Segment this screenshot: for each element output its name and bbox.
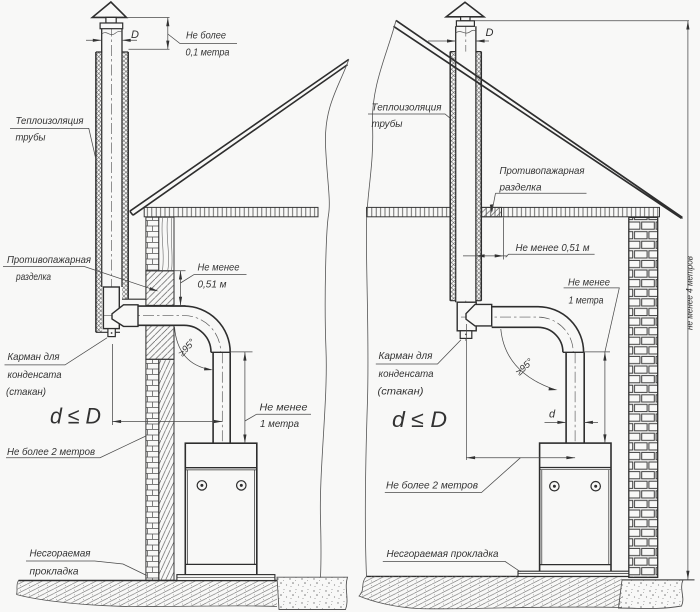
- svg-text:разделка: разделка: [499, 181, 542, 193]
- svg-text:Карман для: Карман для: [8, 351, 60, 363]
- svg-text:прокладка: прокладка: [30, 565, 79, 577]
- svg-text:(стакан): (стакан): [378, 386, 424, 398]
- svg-text:Не более: Не более: [186, 30, 226, 42]
- svg-text:d ≤ D: d ≤ D: [50, 404, 101, 429]
- svg-text:Противопажарная: Противопажарная: [7, 254, 91, 266]
- svg-text:Не более 2 метров: Не более 2 метров: [7, 446, 95, 458]
- svg-text:Несгораемая: Несгораемая: [30, 547, 91, 559]
- svg-text:Не более 2 метров: Не более 2 метров: [386, 480, 478, 492]
- svg-text:1 метра: 1 метра: [569, 294, 604, 306]
- svg-text:Теплоизоляция: Теплоизоляция: [372, 102, 442, 114]
- svg-text:Карман для: Карман для: [379, 350, 433, 362]
- svg-text:Противопажарная: Противопажарная: [500, 165, 585, 177]
- svg-text:Не менее: Не менее: [198, 261, 240, 273]
- svg-text:конденсата: конденсата: [379, 368, 434, 380]
- svg-text:D: D: [131, 29, 139, 41]
- svg-text:трубы: трубы: [372, 118, 403, 130]
- svg-text:D: D: [486, 27, 494, 39]
- svg-text:1 метра: 1 метра: [260, 418, 299, 430]
- svg-text:Не менее: Не менее: [260, 402, 308, 414]
- svg-text:Не менее: Не менее: [568, 276, 610, 288]
- svg-text:Несгораемая прокладка: Несгораемая прокладка: [387, 548, 499, 560]
- svg-text:d ≤ D: d ≤ D: [392, 407, 447, 432]
- svg-text:конденсата: конденсата: [8, 369, 62, 381]
- svg-text:Теплоизоляция: Теплоизоляция: [16, 115, 84, 127]
- svg-text:(стакан): (стакан): [6, 386, 46, 398]
- svg-text:не менее 4 метров: не менее 4 метров: [685, 256, 696, 330]
- svg-text:разделка: разделка: [15, 271, 51, 283]
- svg-text:0,1 метра: 0,1 метра: [186, 47, 230, 59]
- svg-text:Не менее 0,51 м: Не менее 0,51 м: [516, 242, 590, 254]
- svg-text:трубы: трубы: [16, 132, 46, 144]
- svg-text:d: d: [549, 409, 556, 421]
- svg-text:0,51 м: 0,51 м: [198, 278, 227, 290]
